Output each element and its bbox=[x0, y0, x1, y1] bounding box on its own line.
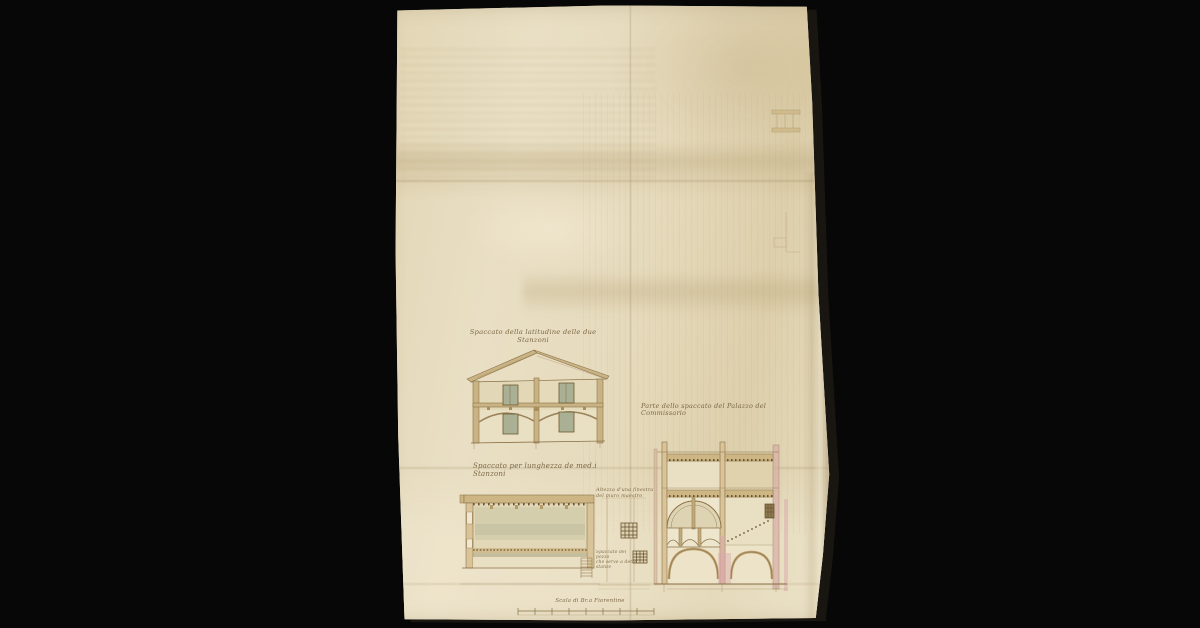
long-section-drawing bbox=[460, 492, 600, 590]
stain-band-top bbox=[383, 141, 831, 199]
caption-house-line2: Stanzoni bbox=[469, 337, 597, 345]
caption-house-section: Spaccato della latitudine delle due Stan… bbox=[469, 329, 597, 345]
stain-band-mid bbox=[523, 271, 831, 315]
bleedthrough-text bbox=[401, 48, 656, 183]
scale-bar-label: Scala di Br.a Fiorentine bbox=[530, 598, 650, 604]
edge-fragment-lower bbox=[768, 212, 802, 257]
caption-long-section: Spaccato per lunghezza de med.i Stanzoni bbox=[473, 462, 605, 478]
palazzo-section-drawing bbox=[648, 441, 788, 596]
manuscript-sheet: Spaccato della latitudine delle due Stan… bbox=[383, 3, 831, 623]
caption-palazzo-section: Parte dello spaccato del Palazzo del Com… bbox=[641, 403, 811, 418]
note-well: Spaccato del pozzo che serve a dette sta… bbox=[596, 551, 638, 571]
scan-viewport: Spaccato della latitudine delle due Stan… bbox=[0, 0, 1200, 628]
note-well-line3: stanze bbox=[596, 566, 638, 571]
well-shaft-drawing bbox=[594, 490, 654, 595]
edge-fragment-upper bbox=[772, 106, 802, 146]
light-patch bbox=[465, 193, 637, 268]
house-section-drawing bbox=[463, 348, 613, 450]
fold-crease-h1 bbox=[383, 180, 831, 182]
scale-bar bbox=[516, 606, 656, 618]
